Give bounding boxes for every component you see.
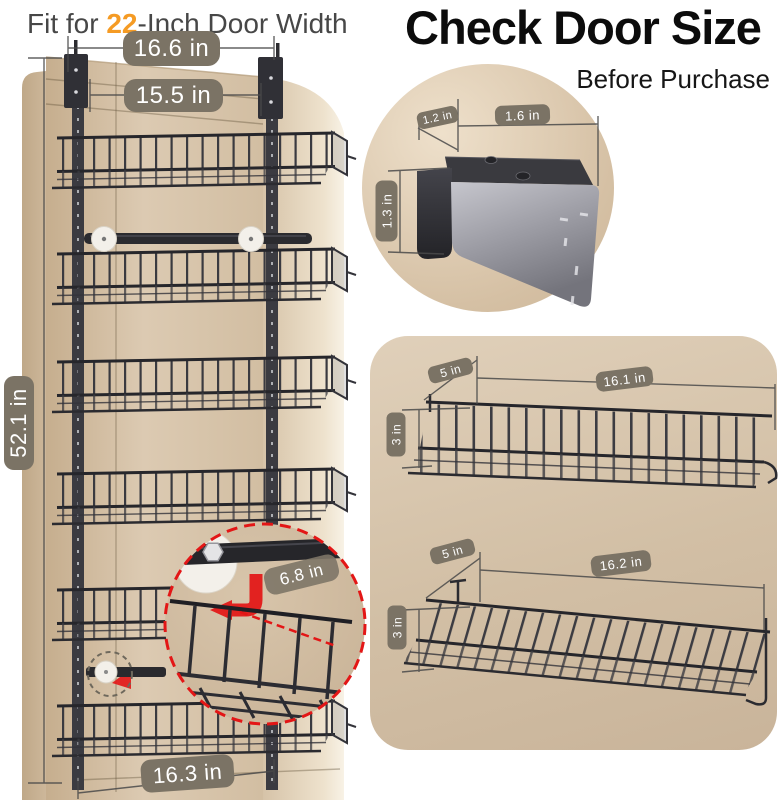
- suction-disc: [92, 227, 117, 252]
- mounting-bar: [84, 227, 312, 252]
- door-width-dimensions: [68, 36, 274, 799]
- basket-depth-zoom-label: 6.8 in: [262, 552, 341, 596]
- magnified-basket: [162, 601, 356, 726]
- basket-detail-panel: [370, 336, 777, 750]
- over-door-hook: [64, 40, 88, 108]
- page-subtitle: Before Purchase: [500, 64, 770, 95]
- product-dimension-infographic: Fit for 22-Inch Door Width Check Door Si…: [0, 0, 779, 800]
- zoom-callout-circle: [160, 518, 393, 732]
- suction-disc: [239, 227, 264, 252]
- top-basket-height-label: 3 in: [387, 413, 406, 457]
- door: [22, 57, 344, 800]
- wire-basket-tiers: [52, 132, 356, 756]
- door-bottom-width-label: 16.3 in: [140, 754, 235, 793]
- bracket-detail-panel: [362, 64, 614, 312]
- bracket-height-label: 1.3 in: [376, 181, 398, 242]
- fit-prefix: Fit for: [27, 8, 106, 39]
- magnified-source-part: [86, 652, 166, 696]
- depth-measure-dashed-line: [240, 612, 336, 646]
- hanging-rails: [64, 40, 283, 790]
- door-inner-width-label: 15.5 in: [124, 79, 223, 112]
- red-arrow: [210, 574, 256, 620]
- door-top-width-label: 16.6 in: [123, 31, 220, 66]
- hex-bolt: [203, 543, 223, 560]
- page-title: Check Door Size: [387, 0, 779, 55]
- over-door-hook: [258, 43, 283, 119]
- rack-height-label: 52.1 in: [4, 376, 34, 470]
- bracket-width-label: 1.6 in: [495, 104, 551, 126]
- bottom-basket-height-label: 3 in: [388, 606, 407, 650]
